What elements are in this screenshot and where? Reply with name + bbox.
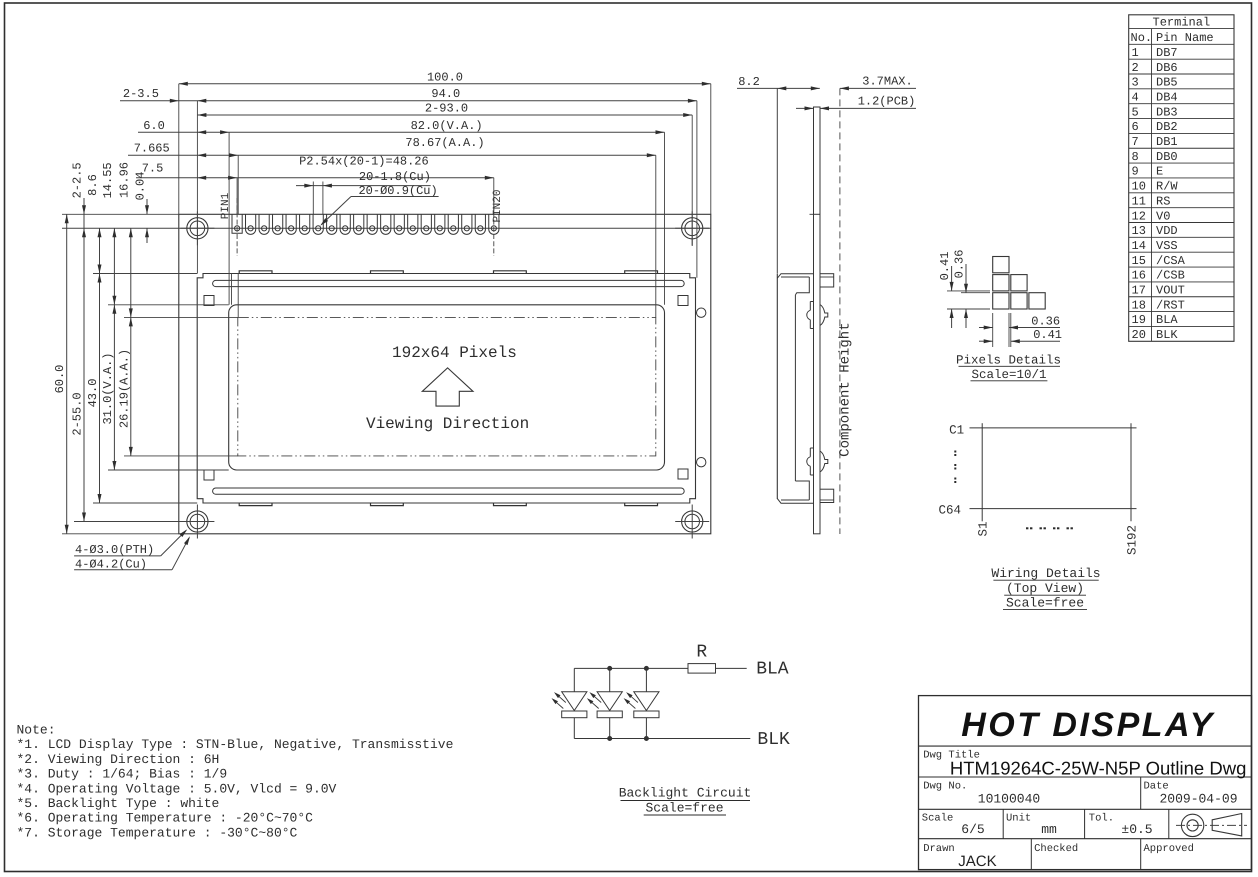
svg-text:*7. Storage Temperature : -30°: *7. Storage Temperature : -30°C~80°C bbox=[17, 825, 298, 840]
svg-text:Backlight Circuit: Backlight Circuit bbox=[619, 786, 752, 801]
svg-text:4-Ø3.0(PTH): 4-Ø3.0(PTH) bbox=[75, 543, 154, 557]
svg-text:2009-04-09: 2009-04-09 bbox=[1159, 792, 1237, 807]
svg-text:8: 8 bbox=[1132, 150, 1139, 164]
svg-text:100.0: 100.0 bbox=[427, 71, 463, 85]
svg-text:JACK: JACK bbox=[958, 853, 996, 870]
svg-text:Pin Name: Pin Name bbox=[1156, 31, 1214, 45]
svg-text:0.41: 0.41 bbox=[938, 252, 952, 281]
svg-text:11: 11 bbox=[1132, 194, 1146, 208]
svg-text:Scale=10/1: Scale=10/1 bbox=[971, 368, 1046, 382]
svg-text:DB6: DB6 bbox=[1156, 61, 1178, 75]
svg-text:S192: S192 bbox=[1126, 525, 1140, 555]
svg-text:94.0: 94.0 bbox=[431, 87, 460, 101]
svg-text:BLA: BLA bbox=[1156, 313, 1178, 327]
svg-text:9: 9 bbox=[1132, 165, 1139, 179]
svg-text:Unit: Unit bbox=[1006, 813, 1031, 825]
svg-text:(Top View): (Top View) bbox=[1006, 581, 1084, 596]
svg-text:/RST: /RST bbox=[1156, 298, 1185, 312]
svg-text:7: 7 bbox=[1132, 135, 1139, 149]
svg-text:20-1.8(Cu): 20-1.8(Cu) bbox=[359, 170, 431, 184]
svg-text:8.6: 8.6 bbox=[86, 174, 100, 196]
svg-text:P2.54x(20-1)=48.26: P2.54x(20-1)=48.26 bbox=[299, 154, 429, 168]
svg-text:7.665: 7.665 bbox=[134, 141, 170, 155]
svg-text:/CSB: /CSB bbox=[1156, 269, 1185, 283]
svg-text:C1: C1 bbox=[949, 424, 964, 438]
svg-text:/CSA: /CSA bbox=[1156, 254, 1186, 268]
svg-text:2-55.0: 2-55.0 bbox=[71, 392, 85, 435]
svg-text:DB3: DB3 bbox=[1156, 105, 1178, 119]
svg-text:PIN1: PIN1 bbox=[220, 192, 232, 219]
svg-text:Dwg No.: Dwg No. bbox=[923, 781, 967, 793]
svg-text:60.0: 60.0 bbox=[53, 365, 67, 394]
svg-text:Component Height: Component Height bbox=[838, 322, 854, 456]
svg-text:5: 5 bbox=[1132, 105, 1139, 119]
svg-text:C64: C64 bbox=[939, 504, 962, 518]
svg-text:15: 15 bbox=[1132, 254, 1146, 268]
svg-text:0.36: 0.36 bbox=[952, 250, 966, 279]
svg-text:8.2: 8.2 bbox=[738, 75, 760, 89]
svg-text:13: 13 bbox=[1132, 224, 1146, 238]
svg-text:78.67(A.A.): 78.67(A.A.) bbox=[405, 136, 484, 150]
svg-text:Approved: Approved bbox=[1144, 843, 1194, 855]
svg-text:192x64 Pixels: 192x64 Pixels bbox=[392, 344, 517, 362]
svg-text:16.96: 16.96 bbox=[117, 162, 131, 198]
svg-text:Note:: Note: bbox=[17, 723, 56, 738]
svg-text:R: R bbox=[696, 643, 707, 663]
svg-text:Checked: Checked bbox=[1034, 843, 1078, 855]
svg-text:DB1: DB1 bbox=[1156, 135, 1178, 149]
svg-text:HTM19264C-25W-N5P Outline Dwg: HTM19264C-25W-N5P Outline Dwg bbox=[950, 758, 1246, 779]
svg-text:*3. Duty : 1/64; Bias : 1/9: *3. Duty : 1/64; Bias : 1/9 bbox=[17, 767, 228, 782]
svg-text:2: 2 bbox=[1132, 61, 1139, 75]
svg-text:DB7: DB7 bbox=[1156, 46, 1178, 60]
svg-text:BLK: BLK bbox=[757, 730, 790, 750]
svg-text:2-93.0: 2-93.0 bbox=[425, 102, 468, 116]
svg-text:*1. LCD Display Type : STN-Blu: *1. LCD Display Type : STN-Blue, Negativ… bbox=[17, 737, 454, 752]
svg-text:Scale: Scale bbox=[922, 813, 954, 825]
svg-text:18: 18 bbox=[1132, 298, 1146, 312]
svg-text:DB5: DB5 bbox=[1156, 76, 1178, 90]
svg-text:10: 10 bbox=[1132, 180, 1146, 194]
svg-text:S1: S1 bbox=[977, 521, 991, 536]
svg-text:*5. Backlight Type : white: *5. Backlight Type : white bbox=[17, 796, 220, 811]
svg-text:82.0(V.A.): 82.0(V.A.) bbox=[411, 119, 483, 133]
svg-text:±0.5: ±0.5 bbox=[1121, 822, 1152, 837]
svg-text:14: 14 bbox=[1132, 239, 1146, 253]
svg-text:VSS: VSS bbox=[1156, 239, 1178, 253]
svg-text:BLA: BLA bbox=[756, 660, 789, 680]
svg-text:*4. Operating Voltage : 5.0V,: *4. Operating Voltage : 5.0V, Vlcd = 9.0… bbox=[17, 781, 337, 796]
svg-text:31.0(V.A.): 31.0(V.A.) bbox=[101, 352, 115, 424]
svg-text:1.2(PCB): 1.2(PCB) bbox=[858, 95, 916, 109]
svg-text:Scale=free: Scale=free bbox=[1006, 596, 1084, 611]
svg-text:VOUT: VOUT bbox=[1156, 284, 1185, 298]
svg-text:10100040: 10100040 bbox=[978, 792, 1040, 807]
svg-text:20: 20 bbox=[1132, 328, 1146, 342]
svg-text:6.0: 6.0 bbox=[143, 119, 165, 133]
svg-text:16: 16 bbox=[1132, 269, 1146, 283]
svg-text:3.7MAX.: 3.7MAX. bbox=[862, 75, 912, 89]
svg-text:VDD: VDD bbox=[1156, 224, 1178, 238]
svg-text:2-3.5: 2-3.5 bbox=[123, 87, 159, 101]
svg-text:RS: RS bbox=[1156, 194, 1170, 208]
svg-text:Tol.: Tol. bbox=[1089, 813, 1114, 825]
svg-text:1: 1 bbox=[1132, 46, 1139, 60]
svg-text:14.55: 14.55 bbox=[101, 162, 115, 198]
svg-text:26.19(A.A.): 26.19(A.A.) bbox=[117, 349, 131, 428]
svg-text:Scale=free: Scale=free bbox=[645, 801, 723, 816]
svg-text:HOT DISPLAY: HOT DISPLAY bbox=[961, 706, 1215, 744]
svg-text:19: 19 bbox=[1132, 313, 1146, 327]
svg-text:DB2: DB2 bbox=[1156, 120, 1178, 134]
svg-text:Wiring Details: Wiring Details bbox=[991, 566, 1100, 581]
svg-text:mm: mm bbox=[1041, 822, 1057, 837]
svg-text:*2. Viewing Direction : 6H: *2. Viewing Direction : 6H bbox=[17, 752, 220, 767]
svg-text:3: 3 bbox=[1132, 76, 1139, 90]
svg-text:R/W: R/W bbox=[1156, 180, 1178, 194]
svg-text:4: 4 bbox=[1132, 90, 1139, 104]
svg-text:E: E bbox=[1156, 165, 1163, 179]
svg-text:DB4: DB4 bbox=[1156, 90, 1178, 104]
svg-text:BLK: BLK bbox=[1156, 328, 1178, 342]
svg-text:43.0: 43.0 bbox=[86, 379, 100, 408]
svg-text:Drawn: Drawn bbox=[923, 843, 955, 855]
svg-text:6/5: 6/5 bbox=[961, 822, 984, 837]
svg-text:V0: V0 bbox=[1156, 209, 1170, 223]
svg-text:No.: No. bbox=[1131, 31, 1153, 45]
svg-text:Pixels Details: Pixels Details bbox=[956, 354, 1061, 368]
svg-text:12: 12 bbox=[1132, 209, 1146, 223]
svg-text:20-Ø0.9(Cu): 20-Ø0.9(Cu) bbox=[358, 184, 437, 198]
svg-text:*6. Operating Temperature : -2: *6. Operating Temperature : -20°C~70°C bbox=[17, 811, 314, 826]
svg-text:2-2.5: 2-2.5 bbox=[71, 162, 85, 198]
svg-text:17: 17 bbox=[1132, 284, 1146, 298]
svg-text:0.36: 0.36 bbox=[1031, 314, 1060, 328]
svg-text:0.04: 0.04 bbox=[134, 172, 148, 201]
svg-text:0.41: 0.41 bbox=[1033, 328, 1062, 342]
svg-text:Viewing Direction: Viewing Direction bbox=[366, 415, 529, 433]
svg-text:DB0: DB0 bbox=[1156, 150, 1178, 164]
svg-text:Terminal: Terminal bbox=[1153, 16, 1211, 30]
svg-text:6: 6 bbox=[1132, 120, 1139, 134]
